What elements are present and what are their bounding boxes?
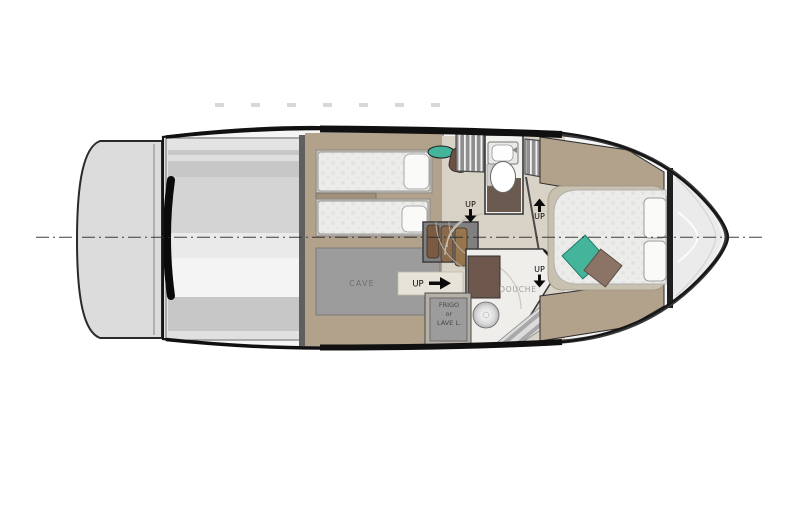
frigo-label-line2: or xyxy=(446,310,453,318)
up-aft-label: UP xyxy=(398,272,463,295)
guest-bed-1-pillow xyxy=(404,154,429,189)
toilet xyxy=(491,162,516,193)
shower-drain xyxy=(483,312,489,318)
stair-step-1 xyxy=(427,225,439,258)
master-cabin xyxy=(540,137,673,341)
toilet-room xyxy=(485,135,523,214)
up-corridor-port-text: UP xyxy=(465,200,476,209)
aft-deck xyxy=(165,137,303,341)
sink-basin xyxy=(492,145,513,161)
master-pillow-2 xyxy=(644,241,666,281)
frigo-label-line1: FRIGO xyxy=(439,301,459,309)
douche-label: DOUCHE xyxy=(499,285,537,294)
nightstand xyxy=(316,193,376,199)
master-bulkhead xyxy=(667,168,673,308)
cave-label: CAVE xyxy=(349,279,375,288)
frigo-box: FRIGO or LAVE L. xyxy=(425,293,471,345)
up-douche-text: UP xyxy=(534,265,545,274)
swim-platform xyxy=(77,141,162,338)
up-aft-text: UP xyxy=(412,280,423,290)
faint-superstructure-dashes xyxy=(215,103,440,107)
shower-vanity xyxy=(468,256,500,298)
yacht-floor-plan: CAVE UP UP xyxy=(0,0,800,528)
master-pillow-1 xyxy=(644,198,666,238)
vanity-bowl-teal xyxy=(428,146,454,158)
frigo-label-line3: LAVE L. xyxy=(437,319,461,327)
transom-crescent xyxy=(167,180,171,296)
floor-plan-canvas: CAVE UP UP xyxy=(0,0,800,528)
hatch-left xyxy=(456,134,484,172)
up-corridor-starboard-text: UP xyxy=(534,212,545,221)
